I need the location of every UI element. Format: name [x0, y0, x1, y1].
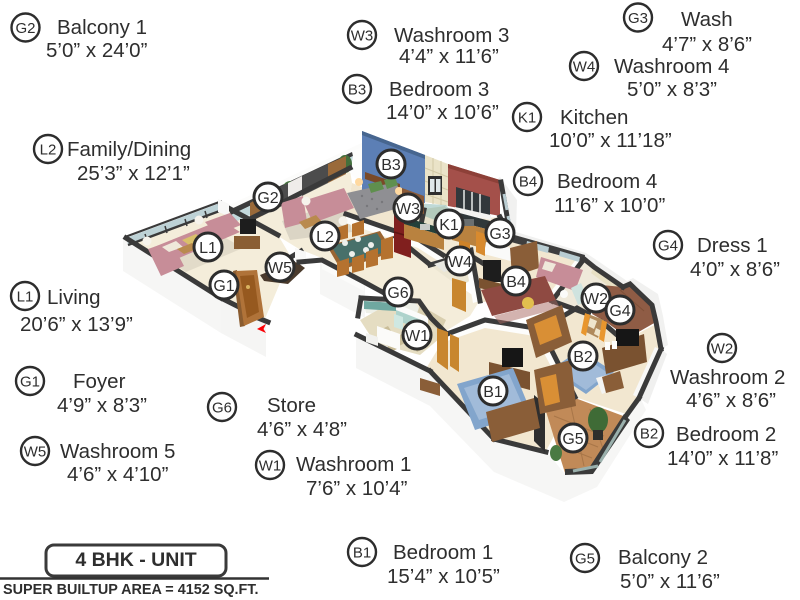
svg-text:Bedroom 3: Bedroom 3	[389, 78, 489, 101]
svg-text:5’0” x 8’3”: 5’0” x 8’3”	[627, 78, 717, 101]
svg-text:Family/Dining: Family/Dining	[67, 138, 191, 161]
svg-text:Kitchen: Kitchen	[560, 106, 628, 129]
svg-text:Wash: Wash	[681, 8, 733, 31]
svg-text:L2: L2	[40, 142, 57, 159]
svg-text:Balcony 2: Balcony 2	[618, 546, 708, 569]
svg-text:G5: G5	[575, 551, 595, 568]
svg-text:Balcony 1: Balcony 1	[57, 16, 147, 39]
svg-text:K1: K1	[518, 110, 536, 127]
svg-text:Dress 1: Dress 1	[697, 234, 768, 257]
svg-text:4’6” x 4’8”: 4’6” x 4’8”	[257, 418, 347, 441]
svg-text:W1: W1	[259, 458, 282, 475]
svg-text:Washroom 3: Washroom 3	[394, 24, 509, 47]
svg-text:25’3” x 12’1”: 25’3” x 12’1”	[77, 162, 190, 185]
svg-text:L2: L2	[316, 229, 334, 246]
svg-text:10’0” x 11’18”: 10’0” x 11’18”	[549, 129, 672, 152]
svg-text:B2: B2	[640, 426, 658, 443]
svg-text:4’6” x 4’10”: 4’6” x 4’10”	[67, 463, 169, 486]
svg-text:B3: B3	[348, 82, 366, 99]
svg-text:4’0” x 8’6”: 4’0” x 8’6”	[690, 258, 780, 281]
svg-text:4’4” x 11’6”: 4’4” x 11’6”	[399, 45, 499, 68]
svg-text:G3: G3	[628, 10, 648, 27]
svg-text:Living: Living	[47, 286, 101, 309]
svg-text:4 BHK - UNIT: 4 BHK - UNIT	[75, 549, 196, 571]
svg-text:Bedroom 4: Bedroom 4	[557, 170, 657, 193]
svg-text:4’9” x 8’3”: 4’9” x 8’3”	[57, 394, 147, 417]
svg-text:B4: B4	[506, 274, 526, 291]
svg-text:Bedroom 1: Bedroom 1	[393, 541, 493, 564]
svg-text:14’0” x 11’8”: 14’0” x 11’8”	[667, 447, 778, 470]
svg-text:L1: L1	[17, 289, 34, 306]
svg-text:4’7” x 8’6”: 4’7” x 8’6”	[662, 33, 752, 56]
svg-text:B1: B1	[353, 545, 371, 562]
svg-text:15’4” x 10’5”: 15’4” x 10’5”	[387, 565, 500, 588]
svg-text:G6: G6	[212, 400, 232, 417]
svg-text:B2: B2	[573, 349, 593, 366]
svg-text:L1: L1	[199, 240, 217, 257]
svg-text:Bedroom 2: Bedroom 2	[676, 423, 776, 446]
svg-text:K1: K1	[439, 217, 459, 234]
svg-text:G1: G1	[20, 374, 40, 391]
svg-text:W3: W3	[351, 28, 374, 45]
svg-text:7’6” x 10’4”: 7’6” x 10’4”	[306, 477, 408, 500]
svg-text:B3: B3	[381, 157, 401, 174]
svg-text:G4: G4	[609, 303, 630, 320]
svg-text:W2: W2	[584, 291, 608, 308]
svg-text:W5: W5	[268, 260, 292, 277]
svg-text:W2: W2	[711, 341, 734, 358]
svg-text:Foyer: Foyer	[73, 370, 126, 393]
svg-text:4’6” x 8’6”: 4’6” x 8’6”	[686, 389, 776, 412]
svg-text:W4: W4	[448, 254, 472, 271]
svg-text:G4: G4	[658, 238, 678, 255]
svg-text:B1: B1	[483, 384, 503, 401]
svg-text:W3: W3	[396, 201, 420, 218]
svg-text:G5: G5	[562, 431, 583, 448]
svg-text:Washroom 4: Washroom 4	[614, 55, 729, 78]
svg-text:W5: W5	[24, 444, 47, 461]
svg-text:Washroom 5: Washroom 5	[60, 440, 175, 463]
svg-text:5’0” x 11’6”: 5’0” x 11’6”	[620, 570, 720, 593]
svg-text:B4: B4	[519, 174, 537, 191]
svg-text:Washroom 1: Washroom 1	[296, 453, 411, 476]
svg-text:5’0” x 24’0”: 5’0” x 24’0”	[46, 39, 148, 62]
svg-text:G1: G1	[213, 278, 234, 295]
svg-text:14’0” x 10’6”: 14’0” x 10’6”	[386, 101, 499, 124]
svg-text:W1: W1	[405, 328, 429, 345]
svg-text:G3: G3	[489, 226, 510, 243]
svg-text:G2: G2	[257, 190, 278, 207]
svg-text:Store: Store	[267, 394, 316, 417]
svg-text:G2: G2	[15, 20, 35, 37]
svg-text:W4: W4	[573, 59, 596, 76]
svg-text:11’6” x 10’0”: 11’6” x 10’0”	[554, 194, 665, 217]
svg-text:SUPER BUILTUP AREA = 4152 SQ.F: SUPER BUILTUP AREA = 4152 SQ.FT.	[3, 582, 259, 598]
svg-text:Washroom 2: Washroom 2	[670, 366, 785, 389]
svg-text:20’6” x 13’9”: 20’6” x 13’9”	[20, 313, 133, 336]
svg-text:G6: G6	[387, 285, 408, 302]
